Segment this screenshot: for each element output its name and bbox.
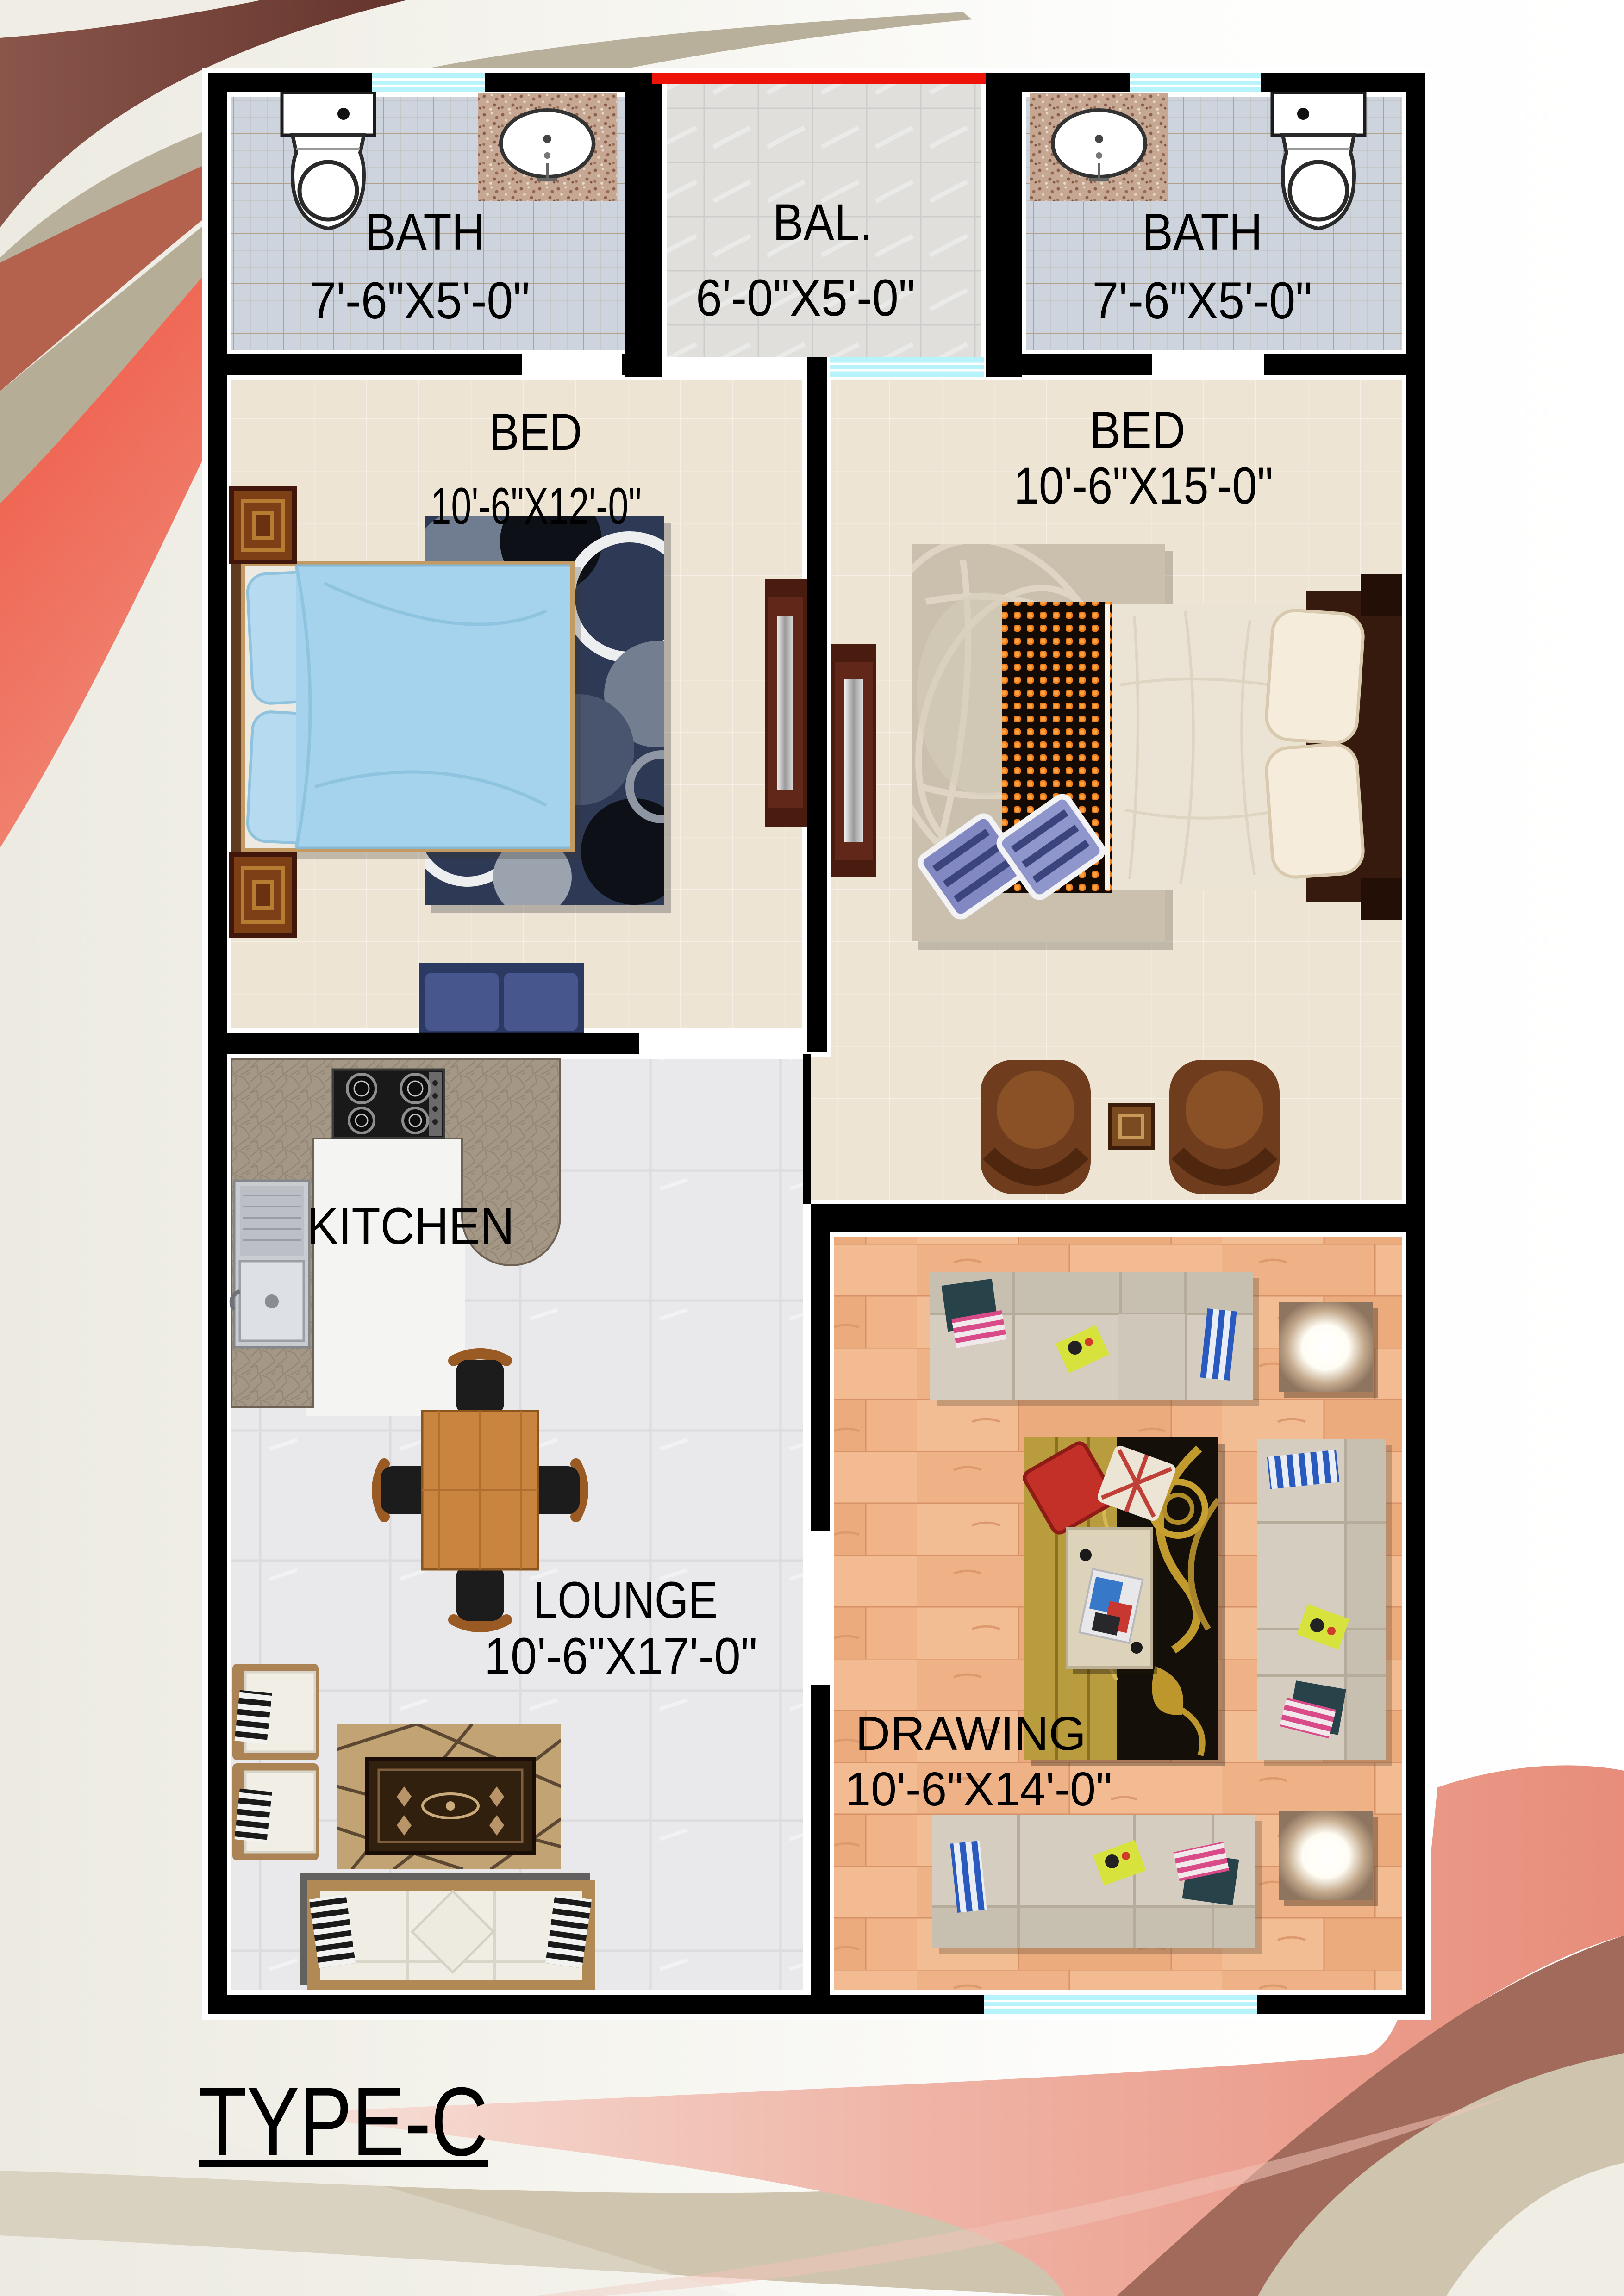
- svg-text:BATH: BATH: [365, 203, 485, 261]
- svg-text:BAL.: BAL.: [773, 193, 873, 251]
- svg-text:KITCHEN: KITCHEN: [307, 1197, 514, 1255]
- svg-text:BED: BED: [489, 403, 582, 461]
- svg-text:10'-6"X14'-0": 10'-6"X14'-0": [845, 1762, 1112, 1816]
- svg-text:10'-6"X15'-0": 10'-6"X15'-0": [1014, 457, 1273, 515]
- svg-text:7'-6"X5'-0": 7'-6"X5'-0": [310, 272, 530, 330]
- svg-text:DRAWING: DRAWING: [856, 1707, 1086, 1760]
- svg-text:6'-0"X5'-0": 6'-0"X5'-0": [696, 269, 915, 327]
- svg-text:7'-6"X5'-0": 7'-6"X5'-0": [1093, 272, 1312, 330]
- svg-text:TYPE-C: TYPE-C: [199, 2067, 488, 2176]
- svg-text:BATH: BATH: [1142, 203, 1262, 261]
- svg-text:10'-6"X17'-0": 10'-6"X17'-0": [484, 1627, 757, 1685]
- svg-text:10'-6"X12'-0": 10'-6"X12'-0": [431, 477, 642, 535]
- svg-text:LOUNGE: LOUNGE: [533, 1571, 718, 1629]
- svg-text:BED: BED: [1090, 401, 1186, 459]
